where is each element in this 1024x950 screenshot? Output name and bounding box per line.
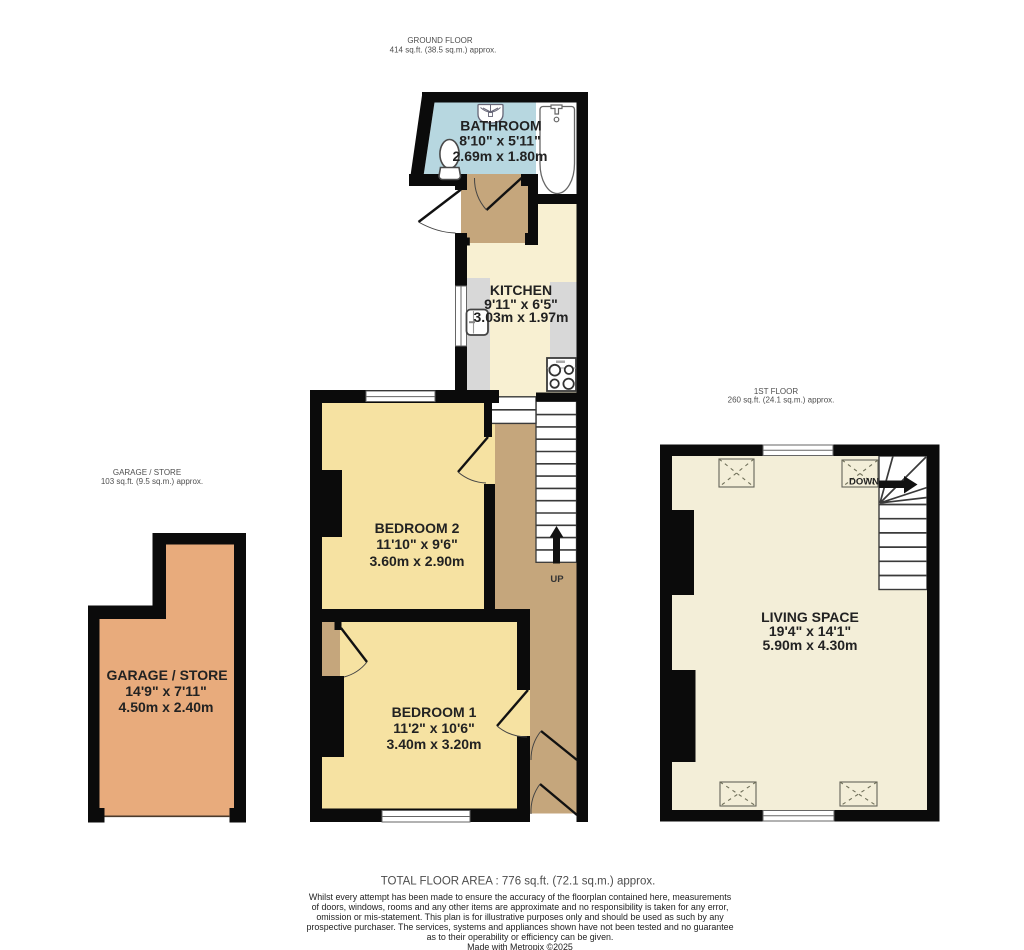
svg-text:4.50m x 2.40m: 4.50m x 2.40m [119,699,214,715]
svg-text:GARAGE / STORE: GARAGE / STORE [113,468,181,477]
svg-text:BATHROOM: BATHROOM [460,118,541,134]
svg-text:103 sq.ft. (9.5 sq.m.) approx.: 103 sq.ft. (9.5 sq.m.) approx. [101,477,203,486]
svg-text:3.60m x 2.90m: 3.60m x 2.90m [370,553,465,569]
svg-text:prospective purchaser. The ser: prospective purchaser. The services, sys… [306,922,733,932]
svg-text:TOTAL FLOOR AREA : 776 sq.ft.: TOTAL FLOOR AREA : 776 sq.ft. (72.1 sq.m… [381,876,656,888]
svg-text:5.90m x 4.30m: 5.90m x 4.30m [763,637,858,653]
svg-text:3.03m x 1.97m: 3.03m x 1.97m [474,309,569,325]
svg-text:UP: UP [550,574,564,585]
svg-text:414 sq.ft. (38.5 sq.m.) approx: 414 sq.ft. (38.5 sq.m.) approx. [390,46,497,55]
svg-text:GROUND FLOOR: GROUND FLOOR [407,36,473,45]
svg-text:14'9" x 7'11": 14'9" x 7'11" [125,683,206,699]
svg-text:Made with Metropix ©2025: Made with Metropix ©2025 [467,942,573,950]
svg-text:11'10" x 9'6": 11'10" x 9'6" [376,536,457,552]
svg-text:8'10" x 5'11": 8'10" x 5'11" [459,133,540,149]
svg-text:2.69m x 1.80m: 2.69m x 1.80m [453,148,548,164]
svg-text:11'2" x 10'6": 11'2" x 10'6" [393,720,474,736]
svg-text:3.40m x 3.20m: 3.40m x 3.20m [387,736,482,752]
svg-text:omission or mis-statement. Thi: omission or mis-statement. This plan is … [316,912,724,922]
svg-text:260 sq.ft. (24.1 sq.m.) approx: 260 sq.ft. (24.1 sq.m.) approx. [728,396,835,405]
svg-text:as to their operability or eff: as to their operability or efficiency ca… [427,932,614,942]
svg-text:BEDROOM 2: BEDROOM 2 [375,520,460,536]
svg-text:BEDROOM 1: BEDROOM 1 [392,704,477,720]
svg-text:DOWN: DOWN [849,477,879,488]
svg-text:Whilst every attempt has been: Whilst every attempt has been made to en… [309,892,732,902]
svg-text:of doors, windows, rooms and a: of doors, windows, rooms and any other i… [312,902,729,912]
svg-text:GARAGE / STORE: GARAGE / STORE [106,667,227,683]
